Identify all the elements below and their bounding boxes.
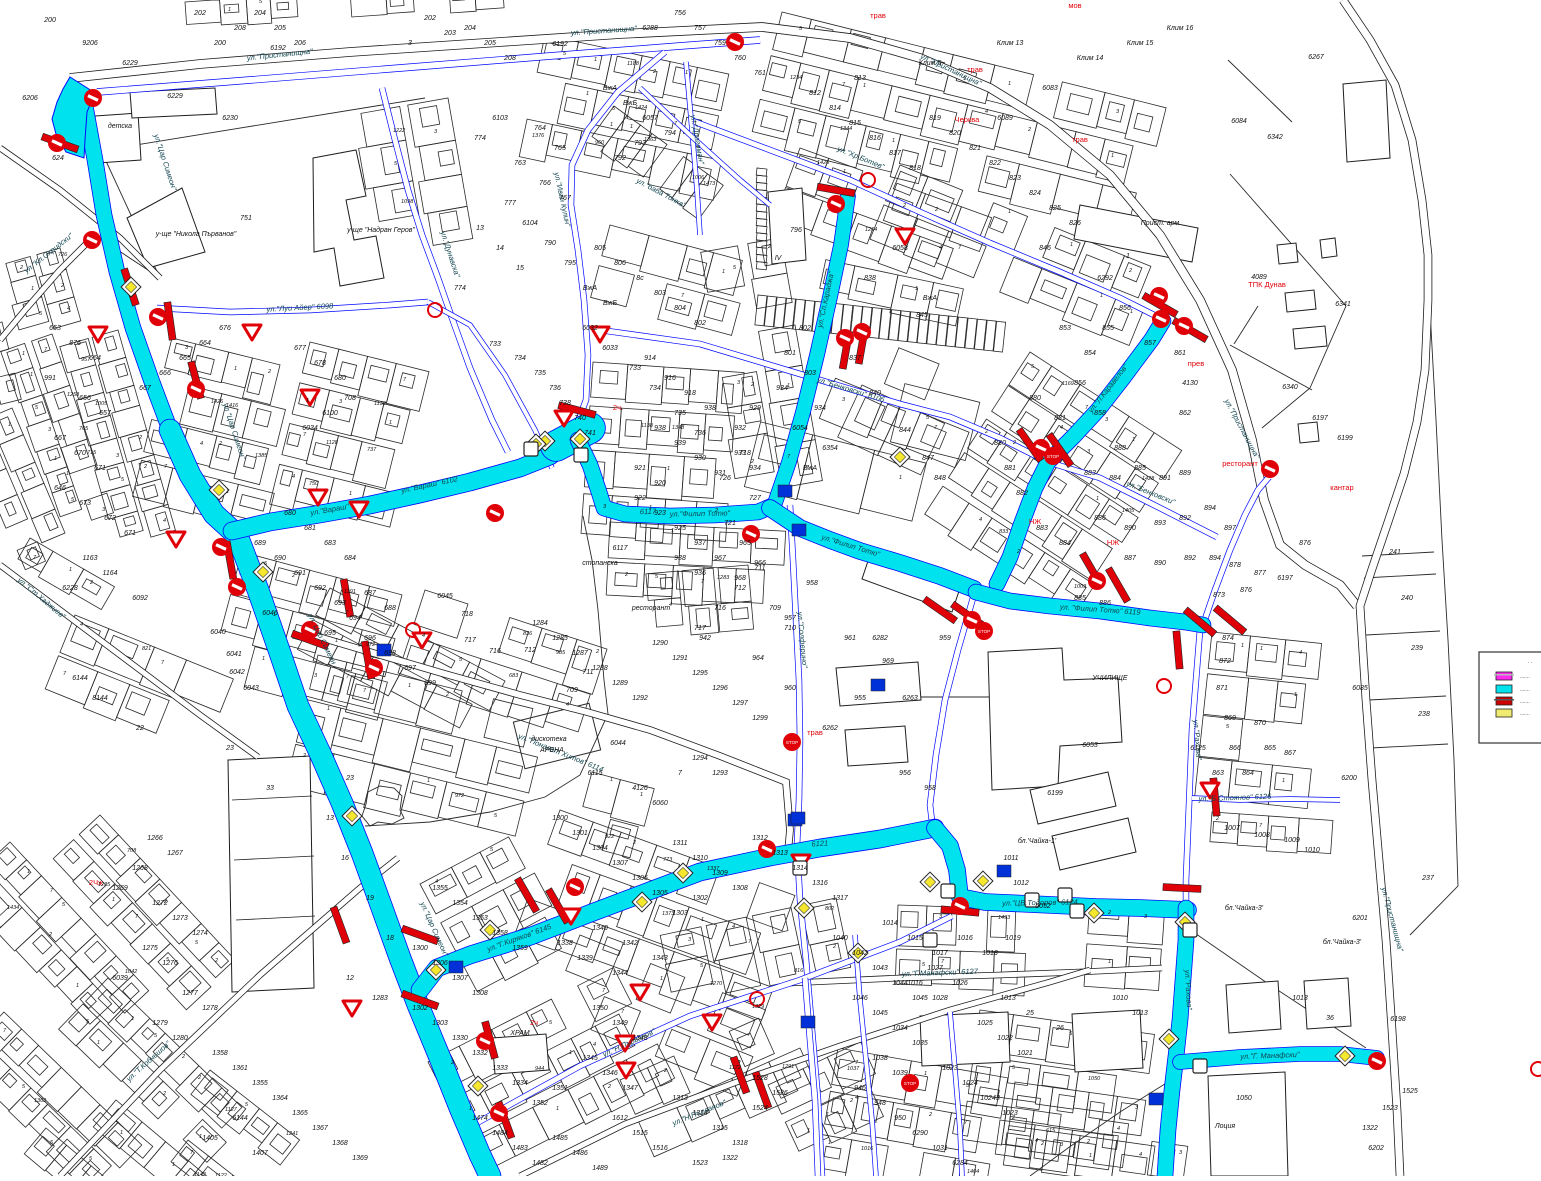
svg-text:1042: 1042 — [125, 969, 137, 975]
svg-text:6284: 6284 — [952, 1160, 968, 1167]
svg-text:718: 718 — [461, 611, 473, 618]
svg-text:1329: 1329 — [752, 1004, 764, 1010]
svg-text:735: 735 — [674, 410, 686, 417]
svg-text:861: 861 — [1174, 350, 1186, 357]
svg-text:10243: 10243 — [980, 1095, 1000, 1102]
svg-text:1346: 1346 — [602, 1070, 618, 1077]
svg-text:1: 1 — [722, 269, 725, 275]
svg-text:1163: 1163 — [82, 555, 97, 562]
svg-text:1188: 1188 — [627, 61, 640, 67]
svg-text:205: 205 — [273, 25, 286, 32]
svg-text:914: 914 — [644, 355, 656, 362]
svg-text:Клим 14: Клим 14 — [1077, 55, 1104, 62]
svg-text:715: 715 — [87, 450, 97, 456]
svg-text:1283: 1283 — [372, 995, 388, 1002]
svg-text:692: 692 — [314, 585, 326, 592]
svg-text:814: 814 — [829, 105, 841, 112]
svg-text:23: 23 — [225, 745, 234, 752]
svg-text:693: 693 — [334, 600, 346, 607]
svg-text:1: 1 — [76, 983, 79, 989]
svg-text:1: 1 — [594, 57, 597, 63]
svg-text:677: 677 — [294, 345, 307, 352]
svg-text:881: 881 — [1054, 415, 1066, 422]
svg-text:819: 819 — [929, 115, 941, 122]
svg-text:804: 804 — [674, 305, 686, 312]
svg-text:880: 880 — [1029, 395, 1041, 402]
svg-text:2: 2 — [750, 459, 754, 465]
svg-text:1313: 1313 — [772, 850, 788, 857]
svg-text:1: 1 — [66, 471, 69, 477]
svg-text:765: 765 — [554, 145, 566, 152]
svg-text:1330: 1330 — [452, 1035, 468, 1042]
svg-text:918: 918 — [684, 390, 696, 397]
svg-text:1278: 1278 — [202, 1005, 218, 1012]
svg-text:1: 1 — [54, 456, 57, 462]
svg-text:2: 2 — [1027, 127, 1031, 133]
svg-text:4: 4 — [1299, 650, 1302, 656]
svg-text:1: 1 — [556, 1106, 559, 1112]
svg-text:4: 4 — [979, 517, 982, 523]
svg-text:1011: 1011 — [1003, 855, 1018, 862]
svg-text:676: 676 — [219, 325, 231, 332]
svg-text:1045: 1045 — [872, 1010, 888, 1017]
svg-text:1: 1 — [640, 792, 643, 798]
svg-text:1: 1 — [112, 897, 115, 903]
svg-text:939: 939 — [674, 440, 686, 447]
svg-text:1515: 1515 — [632, 1130, 648, 1137]
svg-text:967: 967 — [714, 555, 727, 562]
svg-text:НЖ: НЖ — [1029, 517, 1041, 526]
svg-text:STOP: STOP — [1047, 454, 1059, 459]
svg-text:1308: 1308 — [472, 990, 488, 997]
svg-text:4130: 4130 — [1182, 380, 1198, 387]
svg-text:1347: 1347 — [622, 1085, 639, 1092]
svg-text:1528: 1528 — [752, 1075, 768, 1082]
svg-text:1288: 1288 — [592, 665, 608, 672]
svg-text:6034: 6034 — [302, 425, 318, 432]
svg-text:1314: 1314 — [692, 1110, 708, 1117]
svg-text:.......: ....... — [1520, 699, 1530, 705]
svg-text:Клим 16: Клим 16 — [1167, 25, 1194, 32]
svg-text:1302: 1302 — [692, 895, 708, 902]
svg-text:2: 2 — [928, 1112, 932, 1118]
svg-text:6342: 6342 — [1267, 134, 1283, 141]
svg-text:1407: 1407 — [252, 1150, 269, 1157]
svg-text:1143: 1143 — [194, 1172, 207, 1176]
svg-text:1172: 1172 — [729, 1065, 741, 1071]
svg-text:1291: 1291 — [782, 1064, 794, 1070]
svg-text:4126: 4126 — [632, 785, 648, 792]
svg-text:ВжБ: ВжБ — [603, 300, 617, 307]
svg-text:950: 950 — [894, 1115, 906, 1122]
svg-text:4: 4 — [422, 633, 425, 639]
svg-text:710: 710 — [784, 625, 796, 632]
svg-text:937: 937 — [694, 540, 707, 547]
svg-text:1274: 1274 — [192, 930, 208, 937]
svg-text:697: 697 — [404, 665, 417, 672]
svg-text:865: 865 — [1264, 745, 1276, 752]
svg-text:1241: 1241 — [286, 1131, 298, 1137]
svg-text:1: 1 — [630, 124, 633, 130]
svg-text:ресторант: ресторант — [1222, 459, 1258, 468]
svg-text:756: 756 — [674, 10, 686, 17]
svg-text:1: 1 — [1132, 437, 1135, 443]
svg-text:923: 923 — [654, 510, 666, 517]
svg-text:1315: 1315 — [712, 1125, 728, 1132]
svg-text:624: 624 — [52, 155, 64, 162]
svg-text:. .: . . — [1528, 659, 1532, 665]
svg-text:966: 966 — [754, 560, 766, 567]
svg-text:964: 964 — [752, 655, 764, 662]
svg-text:206: 206 — [293, 40, 306, 47]
svg-text:965: 965 — [739, 540, 751, 547]
svg-text:838: 838 — [864, 275, 876, 282]
svg-text:6085: 6085 — [1352, 685, 1368, 692]
svg-text:6282: 6282 — [872, 635, 888, 642]
svg-text:1363: 1363 — [34, 1098, 47, 1104]
svg-text:6115: 6115 — [587, 770, 602, 777]
svg-text:6144: 6144 — [232, 1115, 248, 1122]
svg-text:812: 812 — [809, 90, 821, 97]
svg-text:876: 876 — [69, 340, 81, 347]
svg-text:803: 803 — [654, 290, 666, 297]
svg-text:844: 844 — [899, 427, 911, 434]
svg-text:1359: 1359 — [512, 945, 528, 952]
svg-text:4: 4 — [435, 879, 438, 885]
svg-text:646: 646 — [54, 485, 66, 492]
svg-text:792: 792 — [614, 155, 626, 162]
svg-text:1: 1 — [649, 505, 652, 511]
svg-text:1363: 1363 — [644, 137, 657, 143]
svg-text:трав: трав — [870, 11, 886, 20]
svg-text:1: 1 — [273, 612, 276, 618]
svg-text:969: 969 — [882, 658, 894, 665]
svg-text:1: 1 — [1130, 309, 1133, 315]
svg-text:1: 1 — [826, 1112, 829, 1118]
svg-text:205: 205 — [483, 40, 496, 47]
svg-text:803: 803 — [804, 370, 816, 377]
svg-text:972: 972 — [455, 793, 464, 799]
svg-text:1191: 1191 — [344, 589, 356, 595]
svg-text:817: 817 — [889, 150, 902, 157]
svg-text:1098: 1098 — [401, 199, 414, 205]
svg-text:1010: 1010 — [1304, 847, 1320, 854]
svg-text:237: 237 — [1421, 875, 1435, 882]
svg-text:958: 958 — [806, 580, 818, 587]
svg-text:4: 4 — [292, 474, 295, 480]
svg-text:863: 863 — [1212, 770, 1224, 777]
svg-text:6041: 6041 — [226, 651, 242, 658]
svg-text:1314: 1314 — [792, 865, 808, 872]
svg-text:6083: 6083 — [1042, 85, 1058, 92]
svg-text:1302: 1302 — [412, 1005, 428, 1012]
svg-text:867: 867 — [1284, 750, 1297, 757]
svg-text:1339: 1339 — [577, 955, 593, 962]
svg-text:6198: 6198 — [1390, 1016, 1406, 1023]
svg-text:824: 824 — [1029, 190, 1041, 197]
svg-text:751: 751 — [240, 215, 252, 222]
svg-text:2: 2 — [181, 1054, 185, 1060]
svg-text:1: 1 — [327, 706, 330, 712]
svg-text:653: 653 — [49, 325, 61, 332]
svg-text:2: 2 — [218, 441, 222, 447]
svg-text:1: 1 — [586, 91, 589, 97]
svg-text:6290: 6290 — [912, 1130, 928, 1137]
svg-text:4: 4 — [669, 602, 672, 608]
svg-text:.......: ....... — [1520, 687, 1530, 693]
svg-text:6341: 6341 — [1335, 301, 1351, 308]
svg-text:960: 960 — [784, 685, 796, 692]
svg-text:4: 4 — [939, 245, 942, 251]
svg-text:936: 936 — [694, 570, 706, 577]
svg-text:1042: 1042 — [852, 950, 868, 957]
svg-text:6192: 6192 — [270, 45, 286, 52]
svg-text:960: 960 — [595, 140, 605, 146]
svg-text:1279: 1279 — [152, 1020, 168, 1027]
svg-text:мов: мов — [1068, 1, 1081, 10]
svg-text:6229: 6229 — [167, 93, 183, 100]
svg-text:1313: 1313 — [672, 1095, 688, 1102]
svg-text:1013: 1013 — [1000, 995, 1016, 1002]
svg-text:1322: 1322 — [722, 1155, 738, 1162]
svg-text:1: 1 — [226, 489, 229, 495]
svg-text:4: 4 — [732, 924, 735, 930]
svg-text:846: 846 — [1039, 245, 1051, 252]
svg-text:4: 4 — [163, 518, 166, 524]
svg-text:НЖ: НЖ — [1107, 538, 1119, 547]
svg-text:1280: 1280 — [172, 1035, 188, 1042]
svg-text:бл.'Чайка-1': бл.'Чайка-1' — [1018, 837, 1057, 845]
svg-text:740: 740 — [574, 415, 586, 422]
svg-text:1039: 1039 — [892, 1070, 908, 1077]
svg-text:1483: 1483 — [512, 1145, 528, 1152]
svg-text:6054: 6054 — [792, 425, 808, 432]
svg-text:2: 2 — [1107, 910, 1111, 916]
svg-text:845: 845 — [916, 312, 928, 319]
svg-text:1258: 1258 — [67, 392, 80, 398]
svg-text:922: 922 — [605, 834, 614, 840]
svg-text:934: 934 — [749, 465, 761, 472]
svg-text:6121: 6121 — [811, 838, 828, 848]
svg-text:2: 2 — [143, 464, 147, 470]
svg-text:734: 734 — [649, 385, 661, 392]
svg-text:1012: 1012 — [1013, 880, 1029, 887]
svg-text:1: 1 — [843, 169, 846, 175]
svg-text:930: 930 — [694, 455, 706, 462]
svg-text:1: 1 — [1100, 293, 1103, 299]
svg-text:1293: 1293 — [712, 770, 728, 777]
svg-text:1355: 1355 — [432, 885, 448, 892]
svg-text:1405: 1405 — [1122, 508, 1135, 514]
svg-text:806: 806 — [614, 260, 626, 267]
svg-text:2: 2 — [1016, 549, 1020, 555]
svg-text:4: 4 — [985, 109, 988, 115]
svg-text:671: 671 — [124, 530, 136, 537]
svg-text:6104: 6104 — [522, 220, 538, 227]
svg-text:684: 684 — [344, 555, 356, 562]
svg-text:691: 691 — [294, 570, 306, 577]
svg-text:1044: 1044 — [892, 980, 908, 987]
svg-text:22: 22 — [135, 725, 144, 732]
svg-text:13: 13 — [326, 815, 334, 822]
svg-text:716: 716 — [714, 605, 726, 612]
svg-text:12: 12 — [346, 975, 354, 982]
svg-text:1268: 1268 — [132, 865, 148, 872]
svg-text:6200: 6200 — [1341, 775, 1357, 782]
svg-text:1294: 1294 — [692, 755, 708, 762]
svg-text:805: 805 — [594, 245, 606, 252]
svg-text:1: 1 — [172, 1162, 175, 1168]
svg-text:6228: 6228 — [62, 585, 78, 592]
svg-text:1345: 1345 — [582, 1055, 598, 1062]
svg-text:1405: 1405 — [202, 1135, 218, 1142]
svg-text:1: 1 — [694, 121, 697, 127]
svg-text:688: 688 — [384, 605, 396, 612]
svg-text:6100: 6100 — [322, 410, 338, 417]
svg-text:6197: 6197 — [1277, 575, 1294, 582]
svg-text:1: 1 — [69, 567, 72, 573]
svg-text:2: 2 — [48, 932, 52, 938]
svg-text:АРЕНА: АРЕНА — [539, 747, 564, 754]
svg-text:6060: 6060 — [652, 800, 668, 807]
svg-text:1021: 1021 — [1017, 1050, 1033, 1057]
svg-text:1473: 1473 — [703, 181, 716, 187]
svg-text:847: 847 — [922, 455, 935, 462]
svg-text:857: 857 — [1144, 340, 1157, 347]
svg-text:1290: 1290 — [652, 640, 668, 647]
svg-text:6052: 6052 — [1035, 903, 1051, 910]
svg-text:1016: 1016 — [957, 935, 973, 942]
svg-text:873: 873 — [1213, 592, 1225, 599]
svg-text:736: 736 — [549, 385, 561, 392]
svg-text:696: 696 — [364, 635, 376, 642]
svg-text:1037: 1037 — [847, 1066, 860, 1072]
svg-text:1344: 1344 — [612, 970, 628, 977]
svg-text:1311: 1311 — [672, 840, 687, 847]
svg-text:1482: 1482 — [532, 1160, 548, 1167]
svg-text:1287: 1287 — [572, 650, 589, 657]
svg-text:1019: 1019 — [1005, 935, 1021, 942]
svg-text:664: 664 — [89, 355, 101, 362]
svg-text:765: 765 — [79, 426, 89, 432]
svg-text:826: 826 — [1069, 220, 1081, 227]
svg-text:1: 1 — [863, 83, 866, 89]
svg-text:1040: 1040 — [832, 935, 848, 942]
svg-text:1266: 1266 — [147, 835, 163, 842]
svg-text:прев: прев — [1188, 359, 1204, 368]
svg-text:1303: 1303 — [432, 1020, 448, 1027]
svg-text:794: 794 — [664, 130, 676, 137]
svg-text:19: 19 — [366, 895, 374, 902]
svg-text:2: 2 — [162, 1091, 166, 1097]
svg-text:1: 1 — [780, 1089, 783, 1095]
svg-text:1338: 1338 — [557, 940, 573, 947]
svg-text:1013: 1013 — [1132, 1010, 1148, 1017]
svg-text:889: 889 — [1179, 470, 1191, 477]
svg-text:894: 894 — [1209, 555, 1221, 562]
svg-text:1: 1 — [807, 1128, 810, 1134]
svg-text:1316: 1316 — [812, 880, 828, 887]
svg-text:802: 802 — [694, 320, 706, 327]
svg-text:детска: детска — [108, 122, 132, 130]
svg-text:трав: трав — [1072, 135, 1088, 144]
svg-text:16: 16 — [341, 855, 349, 862]
svg-text:2: 2 — [934, 207, 938, 213]
svg-text:6263: 6263 — [902, 695, 918, 702]
svg-text:1: 1 — [31, 286, 34, 292]
svg-text:1031: 1031 — [932, 1145, 948, 1152]
svg-text:840: 840 — [869, 390, 881, 397]
svg-text:1: 1 — [349, 491, 352, 497]
svg-text:864: 864 — [1242, 770, 1254, 777]
svg-text:657: 657 — [99, 410, 112, 417]
svg-text:856: 856 — [1074, 380, 1086, 387]
svg-text:1009: 1009 — [1284, 837, 1300, 844]
svg-text:656: 656 — [79, 395, 91, 402]
svg-text:862: 862 — [1179, 410, 1191, 417]
svg-text:667: 667 — [54, 435, 67, 442]
svg-text:1038: 1038 — [872, 1055, 888, 1062]
svg-text:931: 931 — [714, 470, 726, 477]
svg-text:1333: 1333 — [492, 1065, 508, 1072]
svg-text:1434: 1434 — [7, 905, 19, 911]
svg-text:874: 874 — [1222, 635, 1234, 642]
svg-text:1353: 1353 — [472, 915, 488, 922]
svg-text:1358: 1358 — [492, 930, 508, 937]
svg-text:869: 869 — [1224, 715, 1236, 722]
svg-text:8144: 8144 — [92, 695, 108, 702]
svg-text:.......: ....... — [1520, 711, 1530, 717]
svg-text:1: 1 — [1089, 1153, 1092, 1159]
svg-text:891: 891 — [1159, 475, 1171, 482]
svg-text:.......: ....... — [1520, 674, 1530, 680]
svg-text:1264: 1264 — [865, 227, 877, 233]
svg-text:1312: 1312 — [752, 835, 768, 842]
svg-text:866: 866 — [1229, 745, 1241, 752]
svg-text:1291: 1291 — [672, 655, 688, 662]
svg-text:1018: 1018 — [982, 950, 998, 957]
svg-text:665: 665 — [179, 355, 191, 362]
svg-text:1306: 1306 — [432, 960, 448, 967]
svg-text:1: 1 — [685, 70, 688, 76]
svg-text:1296: 1296 — [712, 685, 728, 692]
svg-text:938: 938 — [674, 555, 686, 562]
svg-text:2: 2 — [163, 899, 167, 905]
svg-text:733: 733 — [629, 365, 641, 372]
svg-text:1023: 1023 — [942, 1065, 958, 1072]
svg-text:2: 2 — [138, 435, 142, 441]
svg-text:6058: 6058 — [892, 245, 908, 252]
svg-text:1322: 1322 — [1362, 1125, 1378, 1132]
svg-text:938: 938 — [654, 425, 666, 432]
svg-text:673: 673 — [79, 500, 91, 507]
svg-text:836: 836 — [523, 631, 533, 637]
svg-text:1024: 1024 — [962, 1080, 978, 1087]
svg-text:трав: трав — [967, 65, 983, 74]
svg-text:897: 897 — [1224, 525, 1237, 532]
svg-text:1416: 1416 — [226, 403, 239, 409]
svg-text:884: 884 — [1059, 540, 1071, 547]
svg-text:204: 204 — [253, 10, 266, 17]
svg-text:1428: 1428 — [1142, 476, 1155, 482]
svg-text:203: 203 — [443, 30, 456, 37]
svg-text:1486: 1486 — [572, 1150, 588, 1157]
svg-text:1015: 1015 — [907, 935, 923, 942]
svg-text:1046: 1046 — [852, 995, 868, 1002]
svg-text:1367: 1367 — [312, 1125, 329, 1132]
svg-text:8с: 8с — [636, 275, 644, 282]
svg-text:200: 200 — [43, 17, 56, 24]
